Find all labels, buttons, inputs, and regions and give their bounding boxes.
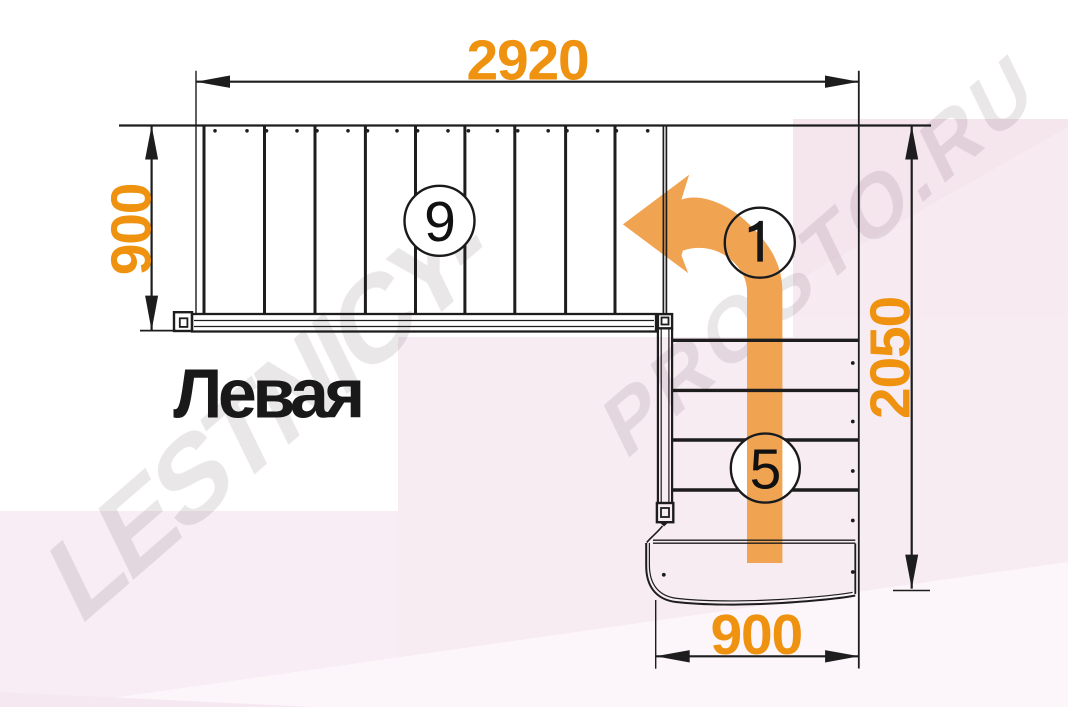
svg-text:Левая: Левая: [173, 355, 360, 433]
svg-text:5: 5: [750, 438, 782, 502]
svg-text:900: 900: [711, 603, 803, 667]
svg-text:2050: 2050: [859, 297, 923, 419]
svg-text:9: 9: [424, 190, 456, 254]
svg-text:2920: 2920: [466, 29, 588, 93]
svg-text:900: 900: [100, 184, 164, 276]
